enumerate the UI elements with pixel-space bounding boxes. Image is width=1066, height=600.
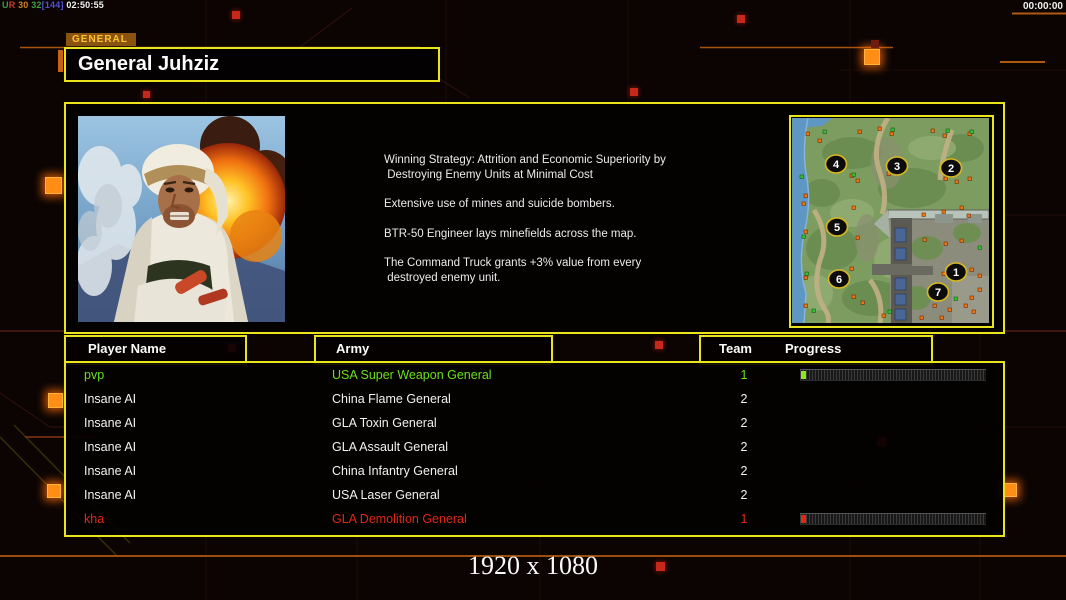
map-dot <box>960 239 963 242</box>
map-dot <box>891 128 894 131</box>
map-dot <box>856 236 859 239</box>
team-number: 2 <box>732 435 756 459</box>
strategy-text: Winning Strategy: Attrition and Economic… <box>384 153 714 300</box>
map-dot <box>923 238 926 241</box>
team-number: 1 <box>732 507 756 531</box>
army-name: China Infantry General <box>332 459 458 483</box>
map-dot <box>800 175 803 178</box>
player-row: Insane AIChina Flame General2 <box>66 387 1003 411</box>
glow-square <box>47 484 61 498</box>
red-square <box>737 15 745 23</box>
map-dot <box>964 304 967 307</box>
map-dot <box>948 308 951 311</box>
map-dot <box>812 309 815 312</box>
team-number: 2 <box>732 483 756 507</box>
map-dot <box>888 310 891 313</box>
map-dot <box>972 310 975 313</box>
red-square <box>143 91 150 98</box>
player-name: Insane AI <box>84 435 136 459</box>
map-dot <box>978 288 981 291</box>
map-dot <box>946 129 949 132</box>
player-name: kha <box>84 507 104 531</box>
map-dot <box>970 296 973 299</box>
start-position-number: 1 <box>953 267 959 279</box>
net-stat: [144] <box>42 0 64 10</box>
general-name-box: General Juhziz <box>64 47 440 82</box>
map-dot <box>850 267 853 270</box>
strategy-paragraph: Extensive use of mines and suicide bombe… <box>384 197 714 212</box>
player-name: pvp <box>84 363 104 387</box>
map-dot <box>960 206 963 209</box>
player-header-label: Player Name <box>88 341 166 356</box>
map-dot <box>878 127 881 130</box>
map-dot <box>944 177 947 180</box>
team-number: 2 <box>732 411 756 435</box>
progress-fill <box>801 371 806 379</box>
glow-square <box>864 49 880 65</box>
red-square <box>232 11 240 19</box>
start-position-number: 7 <box>935 287 941 299</box>
map-dot <box>852 295 855 298</box>
map-dot <box>890 132 893 135</box>
map-dot <box>940 316 943 319</box>
map-dot <box>802 235 805 238</box>
red-square <box>630 88 638 96</box>
general-tab-label: GENERAL <box>72 34 128 45</box>
net-stat: U <box>2 0 9 10</box>
map-dot <box>968 177 971 180</box>
player-row: khaGLA Demolition General1 <box>66 507 1003 531</box>
army-header-label: Army <box>336 341 369 356</box>
army-name: USA Laser General <box>332 483 440 507</box>
map-dot <box>858 130 861 133</box>
map-dot <box>978 274 981 277</box>
map-dot <box>970 130 973 133</box>
strategy-paragraph: BTR-50 Engineer lays minefields across t… <box>384 227 714 242</box>
map-dot <box>806 132 809 135</box>
general-name: General Juhziz <box>66 49 438 80</box>
player-name: Insane AI <box>84 411 136 435</box>
army-name: GLA Toxin General <box>332 411 437 435</box>
player-name: Insane AI <box>84 483 136 507</box>
army-name: GLA Assault General <box>332 435 448 459</box>
map-dot <box>804 194 807 197</box>
player-name: Insane AI <box>84 387 136 411</box>
start-position-number: 4 <box>833 159 840 171</box>
map-dot <box>920 316 923 319</box>
player-name: Insane AI <box>84 459 136 483</box>
map-dot <box>804 276 807 279</box>
glow-square <box>45 177 62 194</box>
loading-screen: UR 30 32[144] 02:50:55 00:00:00 GENERAL … <box>0 0 1066 600</box>
strategy-paragraph: Winning Strategy: Attrition and Economic… <box>384 153 714 182</box>
red-square <box>871 40 879 48</box>
glow-square <box>1003 483 1017 497</box>
map-preview: 1234567 <box>789 115 994 328</box>
map-dot <box>804 230 807 233</box>
map-dot <box>970 268 973 271</box>
map-dot <box>805 272 808 275</box>
team-number: 1 <box>732 363 756 387</box>
load-progress-bar <box>800 369 986 381</box>
map-dot <box>942 210 945 213</box>
map-dot <box>978 246 981 249</box>
start-position-number: 6 <box>836 274 842 286</box>
map-dot <box>823 130 826 133</box>
player-table: pvpUSA Super Weapon General1Insane AIChi… <box>64 361 1005 537</box>
player-row: Insane AIChina Infantry General2 <box>66 459 1003 483</box>
start-position-number: 5 <box>834 222 840 234</box>
map-dot <box>818 139 821 142</box>
team-number: 2 <box>732 459 756 483</box>
map-dot <box>943 134 946 137</box>
progress-header-label: Progress <box>785 341 841 356</box>
match-timer: 00:00:00 <box>1023 1 1063 12</box>
map-dot <box>852 206 855 209</box>
map-dot <box>955 180 958 183</box>
glow-square <box>48 393 63 408</box>
general-tab: GENERAL <box>66 33 136 46</box>
map-dot <box>804 304 807 307</box>
player-row: Insane AIUSA Laser General2 <box>66 483 1003 507</box>
strategy-paragraph: The Command Truck grants +3% value from … <box>384 256 714 285</box>
map-dot <box>882 314 885 317</box>
map-dot <box>861 301 864 304</box>
map-dot <box>944 242 947 245</box>
red-square <box>655 341 663 349</box>
start-position-number: 2 <box>948 163 954 175</box>
map-dot <box>967 214 970 217</box>
start-position-number: 3 <box>894 161 900 173</box>
team-number: 2 <box>732 387 756 411</box>
resolution-label: 1920 x 1080 <box>0 551 1066 581</box>
team-header-label: Team <box>719 341 752 356</box>
map-dot <box>933 304 936 307</box>
map-dot <box>922 213 925 216</box>
map-dot <box>954 297 957 300</box>
map-dot <box>802 202 805 205</box>
net-stat: 02:50:55 <box>64 0 104 10</box>
army-name: GLA Demolition General <box>332 507 467 531</box>
player-row: pvpUSA Super Weapon General1 <box>66 363 1003 387</box>
player-row: Insane AIGLA Assault General2 <box>66 435 1003 459</box>
network-stats-overlay: UR 30 32[144] 02:50:55 <box>2 0 104 10</box>
map-dot <box>852 173 855 176</box>
army-name: China Flame General <box>332 387 451 411</box>
army-name: USA Super Weapon General <box>332 363 492 387</box>
general-info-panel: Winning Strategy: Attrition and Economic… <box>64 102 1005 334</box>
load-progress-bar <box>800 513 986 525</box>
map-dot <box>856 179 859 182</box>
map-dot <box>931 129 934 132</box>
net-stat: 32 <box>31 0 41 10</box>
general-portrait <box>78 116 285 322</box>
player-row: Insane AIGLA Toxin General2 <box>66 411 1003 435</box>
net-stat: 30 <box>15 0 31 10</box>
progress-fill <box>801 515 806 523</box>
